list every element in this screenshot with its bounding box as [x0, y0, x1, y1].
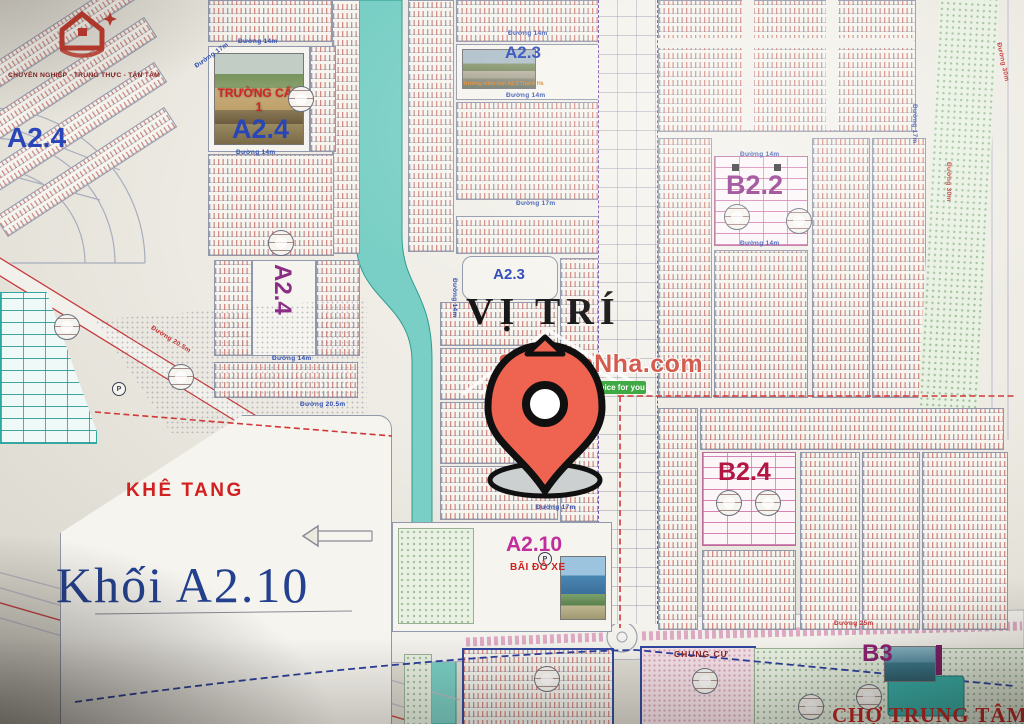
road-label: Đường 14m — [238, 38, 277, 45]
parcel-block — [408, 0, 454, 252]
parking-symbol-icon: P — [112, 382, 126, 396]
road-label: Đường 25m — [834, 620, 873, 627]
seal-stamp-icon — [692, 668, 718, 694]
parcel-block — [440, 466, 558, 520]
seal-stamp-icon — [724, 204, 750, 230]
hatch-area — [95, 295, 367, 433]
zone-label-a24-vertical: A2.4 — [268, 264, 296, 354]
road-label: Đường 14m — [236, 149, 275, 156]
parcel-block — [456, 102, 604, 200]
watermark-brand: SoSanhNha.com — [498, 350, 658, 379]
parcel-block — [922, 452, 1008, 630]
masterplan-map: TRƯỜNG CẤP 1 Trường mầm non A2.3 Thanh H… — [0, 0, 1024, 724]
road-label: Đường 17m — [516, 200, 555, 207]
label-khoi-a210: Khối A2.10 — [56, 556, 309, 614]
seal-stamp-icon — [755, 490, 781, 516]
parking-photo — [560, 556, 606, 620]
road-label: Đường 30m — [945, 162, 952, 201]
parcel-block — [862, 452, 920, 630]
zone-label-a24-corner: A2.4 — [7, 122, 66, 154]
seal-stamp-icon — [534, 666, 560, 692]
kindergarten-photo-caption: Trường mầm non A2.3 Thanh Hà — [463, 81, 535, 87]
parcel-block — [208, 0, 332, 42]
parcel-block — [812, 138, 870, 398]
seal-stamp-icon — [798, 694, 824, 720]
park-area — [398, 528, 474, 624]
parcel-block — [700, 408, 1004, 450]
seal-stamp-icon — [288, 86, 314, 112]
parcel-block — [800, 452, 860, 630]
parcel-block — [872, 138, 926, 398]
label-khe-tang: KHÊ TANG — [126, 480, 244, 502]
road-gap — [742, 0, 754, 130]
road-label: Đường 17m — [911, 104, 918, 143]
parcel-block — [658, 408, 698, 630]
zone-label-b3: B3 — [862, 640, 893, 668]
seal-stamp-icon — [786, 208, 812, 234]
watermark-slogan: Great choice for you — [566, 381, 646, 394]
zone-label-a23-top: A2.3 — [505, 43, 541, 63]
label-chung-cu: CHUNG CƯ — [674, 649, 729, 659]
parcel-block — [702, 550, 796, 630]
parcel-block — [456, 216, 604, 254]
road-label: Đường 14m — [506, 92, 545, 99]
parcel-block — [714, 250, 808, 398]
zone-label-b22: B2.2 — [726, 170, 783, 201]
road-label: Đường 14m — [272, 355, 311, 362]
seal-stamp-icon — [168, 364, 194, 390]
park-area — [404, 654, 432, 724]
label-vi-tri: VỊ TRÍ — [466, 290, 621, 334]
road-label: Đường 17m — [536, 504, 575, 511]
road-label: Đường 20.5m — [300, 401, 346, 408]
label-cho-trung-tam: CHỢ TRUNG TÂM — [832, 703, 1024, 724]
road-label: Đường 14m — [508, 30, 547, 37]
b3-bar — [936, 645, 942, 675]
zone-label-b24: B2.4 — [718, 458, 771, 487]
seal-stamp-icon — [54, 314, 80, 340]
zone-label-a23-center: A2.3 — [462, 266, 556, 283]
label-bai-do-xe: BÃI ĐỖ XE — [510, 562, 566, 573]
zone-label-a24-school: A2.4 — [232, 114, 289, 145]
avenue-median — [466, 637, 604, 642]
seal-stamp-icon — [716, 490, 742, 516]
zone-label-a210: A2.10 — [506, 533, 562, 557]
canal — [430, 656, 456, 724]
parcel-block — [658, 0, 916, 132]
tree-median — [916, 0, 999, 441]
parcel-block — [332, 0, 360, 254]
red-house-logo-icon — [52, 6, 118, 58]
road-label: Đường 14m — [740, 151, 779, 158]
parcel-block — [440, 402, 558, 464]
road-label: Đường 30m — [995, 42, 1010, 82]
brand-tagline: CHUYÊN NGHIỆP - TRUNG THỰC - TẬN TÂM — [8, 72, 168, 79]
seal-stamp-icon — [268, 230, 294, 256]
road-label: Đường 14m — [451, 278, 458, 317]
roundabout-center — [617, 632, 627, 642]
road-gap — [826, 0, 838, 130]
zone-block-teal — [0, 292, 97, 444]
road-gap — [658, 38, 914, 48]
road-label: Đường 14m — [740, 240, 779, 247]
